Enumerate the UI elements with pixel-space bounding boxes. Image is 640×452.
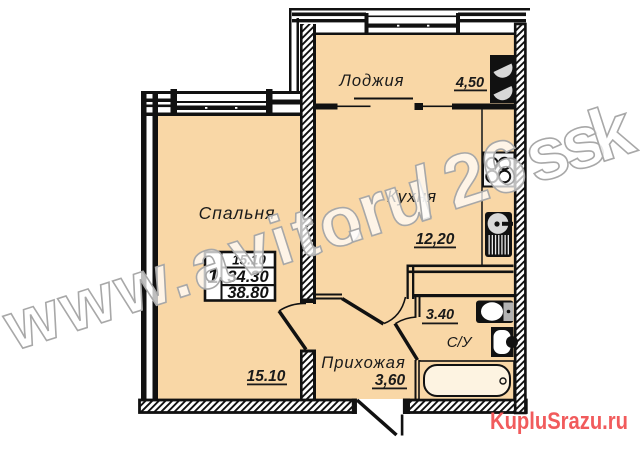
svg-text:KupluSrazu.ru: KupluSrazu.ru <box>490 408 628 435</box>
svg-text:15.10: 15.10 <box>247 368 286 385</box>
svg-text:Прихожая: Прихожая <box>321 354 406 372</box>
svg-text:Лоджия: Лоджия <box>339 72 405 90</box>
svg-text:4,50: 4,50 <box>455 75 484 91</box>
svg-text:3,60: 3,60 <box>375 372 406 389</box>
svg-text:С/У: С/У <box>447 334 473 351</box>
svg-text:3.40: 3.40 <box>426 307 454 323</box>
